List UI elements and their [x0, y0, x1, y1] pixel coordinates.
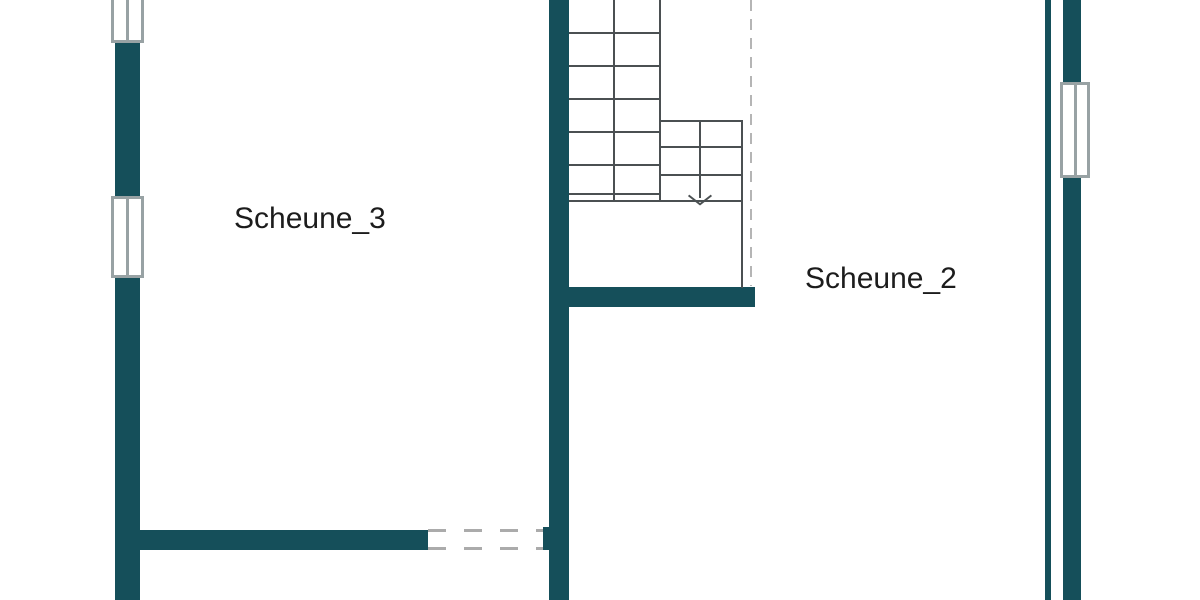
room-label-scheune-3: Scheune_3: [234, 202, 386, 236]
window-icon: [1060, 82, 1090, 178]
stairwell-dashed-boundary-line: [750, 0, 752, 286]
stair-floor-edge-line: [569, 200, 743, 202]
window-icon: [111, 196, 144, 278]
stair-tread-line: [569, 32, 661, 34]
floorplan-canvas: Scheune_3 Scheune_2: [0, 0, 1200, 600]
stair-walking-line: [699, 120, 701, 198]
stair-tread-line: [569, 98, 661, 100]
stair-tread-line: [569, 131, 661, 133]
stair-run-top-line: [660, 120, 743, 122]
stairwell-right-edge-line: [741, 120, 743, 288]
wall-opening-end-cap: [543, 527, 552, 550]
wall-stair-landing-horizontal: [549, 287, 755, 307]
room-label-scheune-2: Scheune_2: [805, 262, 957, 296]
stair-tread-line: [660, 174, 743, 176]
dashed-opening-bottom-line: [428, 547, 543, 550]
stair-tread-line: [660, 146, 743, 148]
stair-flight-bottom-line: [569, 193, 661, 195]
stair-tread-line: [569, 164, 661, 166]
stair-center-divider-line: [613, 0, 615, 201]
window-mullion: [126, 0, 129, 40]
window-mullion: [126, 199, 129, 275]
window-mullion: [1074, 85, 1077, 175]
wall-left-lower-segment: [115, 278, 140, 600]
dashed-opening-top-line: [428, 529, 543, 532]
stair-flight-edge-line: [659, 0, 661, 202]
wall-bottom-horizontal: [115, 530, 428, 550]
wall-right-inner-thin: [1045, 0, 1051, 600]
wall-left-upper-segment: [115, 43, 140, 196]
stair-tread-line: [569, 65, 661, 67]
window-icon: [111, 0, 144, 43]
